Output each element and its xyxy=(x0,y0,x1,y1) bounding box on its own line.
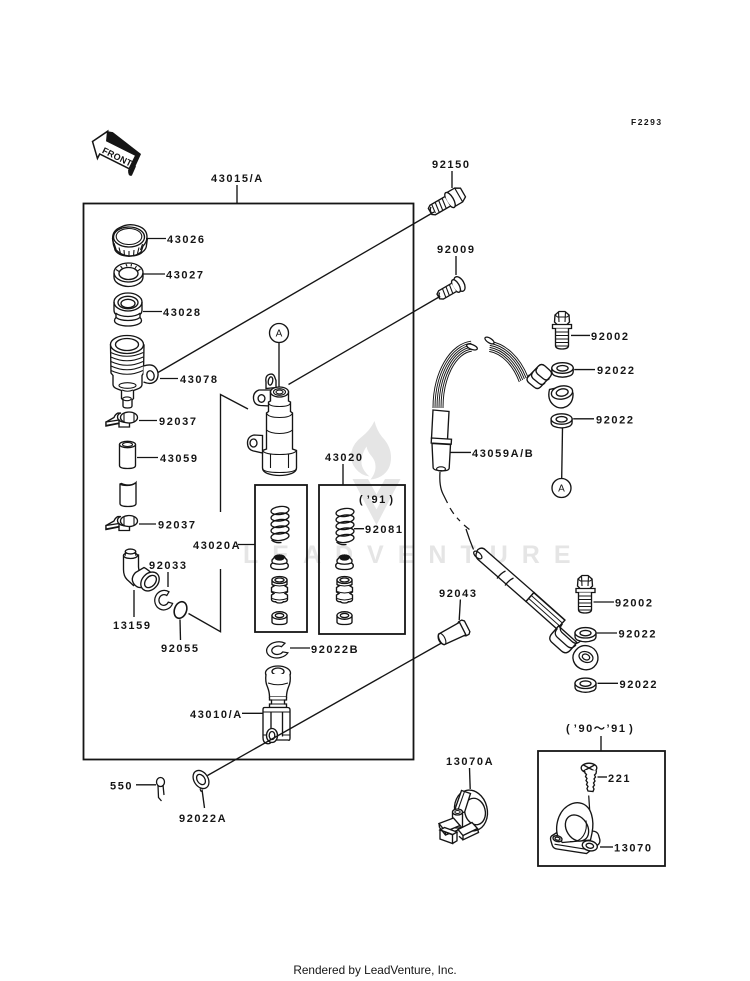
svg-text:92002: 92002 xyxy=(615,598,654,610)
svg-text:43027: 43027 xyxy=(166,270,205,282)
svg-text:43028: 43028 xyxy=(163,307,202,319)
svg-text:92002: 92002 xyxy=(591,331,630,343)
svg-text:43059A/B: 43059A/B xyxy=(472,448,534,460)
svg-text:13159: 13159 xyxy=(113,620,152,632)
svg-text:A: A xyxy=(276,329,283,340)
svg-text:92022: 92022 xyxy=(596,415,635,427)
svg-text:92033: 92033 xyxy=(149,560,188,572)
svg-text:92037: 92037 xyxy=(158,520,197,532)
svg-text:92081: 92081 xyxy=(365,524,404,536)
svg-text:13070A: 13070A xyxy=(446,756,494,768)
svg-text:43078: 43078 xyxy=(180,374,219,386)
svg-text:A: A xyxy=(558,484,565,495)
svg-text:550: 550 xyxy=(110,781,133,793)
svg-text:43020A: 43020A xyxy=(193,540,241,552)
svg-text:92022: 92022 xyxy=(620,679,659,691)
svg-text:43010/A: 43010/A xyxy=(190,709,243,721)
svg-text:( ’90〜’91 ): ( ’90〜’91 ) xyxy=(566,723,634,735)
svg-text:92055: 92055 xyxy=(161,643,200,655)
svg-text:43026: 43026 xyxy=(167,234,206,246)
svg-text:( ’91 ): ( ’91 ) xyxy=(359,494,395,506)
svg-text:92150: 92150 xyxy=(432,159,471,171)
svg-text:92022B: 92022B xyxy=(311,644,359,656)
svg-text:92022: 92022 xyxy=(597,365,636,377)
svg-text:92022A: 92022A xyxy=(179,813,227,825)
svg-text:13070: 13070 xyxy=(614,843,653,855)
svg-text:92037: 92037 xyxy=(159,416,198,428)
svg-text:43059: 43059 xyxy=(160,453,199,465)
svg-text:92043: 92043 xyxy=(439,588,478,600)
svg-text:F2293: F2293 xyxy=(631,117,663,127)
svg-text:43020: 43020 xyxy=(325,452,364,464)
svg-text:221: 221 xyxy=(608,773,631,785)
svg-text:43015/A: 43015/A xyxy=(211,173,264,185)
svg-text:92022: 92022 xyxy=(619,629,658,641)
svg-text:92009: 92009 xyxy=(437,244,476,256)
svg-text:Rendered by LeadVenture, Inc.: Rendered by LeadVenture, Inc. xyxy=(293,963,456,977)
